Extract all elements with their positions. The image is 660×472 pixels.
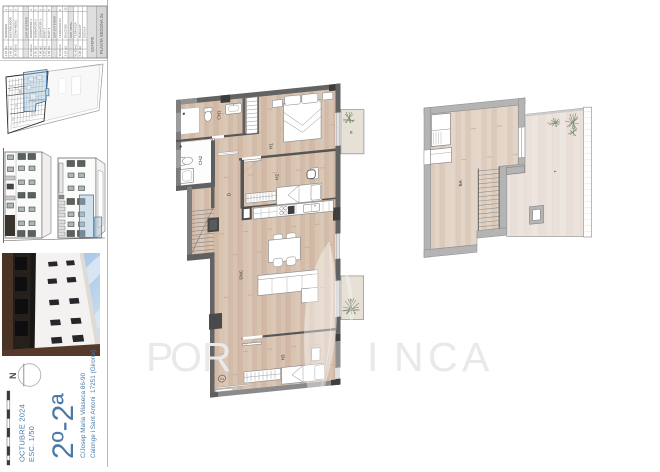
svg-text:R: R [202, 334, 232, 380]
svg-text:QUADRE: QUADRE [91, 36, 95, 52]
svg-text:PLANTA SEGONA 2a: PLANTA SEGONA 2a [99, 13, 104, 54]
svg-text:BALCONS: BALCONS [64, 24, 68, 38]
svg-text:C/Josep Maria Vilaseca 86-90: C/Josep Maria Vilaseca 86-90 [80, 372, 87, 458]
svg-text:12.30 m2: 12.30 m2 [29, 44, 33, 56]
svg-text:4.15 m2: 4.15 m2 [43, 46, 47, 57]
svg-text:CH2: CH2 [198, 155, 203, 165]
svg-text:O: O [170, 334, 202, 380]
svg-text:2.45 m2: 2.45 m2 [9, 46, 13, 57]
svg-text:N: N [394, 334, 424, 380]
svg-text:OCTUBRE 2024: OCTUBRE 2024 [18, 404, 27, 462]
svg-text:ESC. 1/50: ESC. 1/50 [27, 426, 36, 462]
svg-text:38.90 m2: 38.90 m2 [58, 44, 62, 56]
svg-text:CUINA-MENJ.: CUINA-MENJ. [14, 19, 18, 38]
svg-text:TERRASSA: TERRASSA [74, 22, 78, 38]
svg-text:EMC: EMC [239, 270, 244, 280]
svg-text:BADALOT: BADALOT [78, 24, 82, 38]
svg-text:DORMITORI 2: DORMITORI 2 [34, 19, 38, 38]
svg-text:SUP. TOTAL: SUP. TOTAL [69, 21, 73, 38]
svg-text:DORMITORI 1: DORMITORI 1 [29, 19, 33, 38]
svg-text:DISTRIBUIDOR: DISTRIBUIDOR [9, 17, 13, 38]
svg-text:81.40 m2: 81.40 m2 [74, 44, 78, 56]
svg-text:A: A [462, 334, 490, 380]
svg-text:3.10 m2: 3.10 m2 [64, 46, 68, 57]
svg-text:H3: H3 [281, 354, 286, 361]
svg-text:2º-2ª: 2º-2ª [47, 393, 80, 459]
svg-text:TERRASSA P2: TERRASSA P2 [58, 18, 62, 38]
svg-text:4.10 m2: 4.10 m2 [4, 46, 8, 57]
svg-text:ESCALA: ESCALA [83, 27, 87, 38]
svg-text:SUP. INTERIOR: SUP. INTERIOR [24, 17, 28, 38]
svg-text:H1: H1 [269, 142, 274, 149]
svg-text:SUP. EXTERIOR: SUP. EXTERIOR [53, 16, 57, 38]
svg-text:I: I [367, 334, 378, 380]
svg-text:Calonge i Sant Antoni 17251 (: Calonge i Sant Antoni 17251 (Girona) [90, 350, 97, 458]
svg-text:BANY 1: BANY 1 [43, 27, 47, 38]
svg-text:28.75 m2: 28.75 m2 [14, 44, 18, 56]
svg-text:H2: H2 [275, 173, 280, 180]
svg-text:BANY 2: BANY 2 [47, 27, 51, 38]
svg-text:3.60 m2: 3.60 m2 [47, 46, 51, 57]
svg-text:N: N [8, 373, 18, 380]
svg-text:CH1: CH1 [217, 110, 222, 120]
svg-text:REBEDOR: REBEDOR [4, 24, 8, 38]
svg-text:C: C [428, 334, 458, 380]
svg-text:8.65 m2: 8.65 m2 [34, 46, 38, 57]
svg-text:6.20 m2: 6.20 m2 [78, 46, 82, 57]
svg-text:10: 10 [64, 7, 68, 11]
